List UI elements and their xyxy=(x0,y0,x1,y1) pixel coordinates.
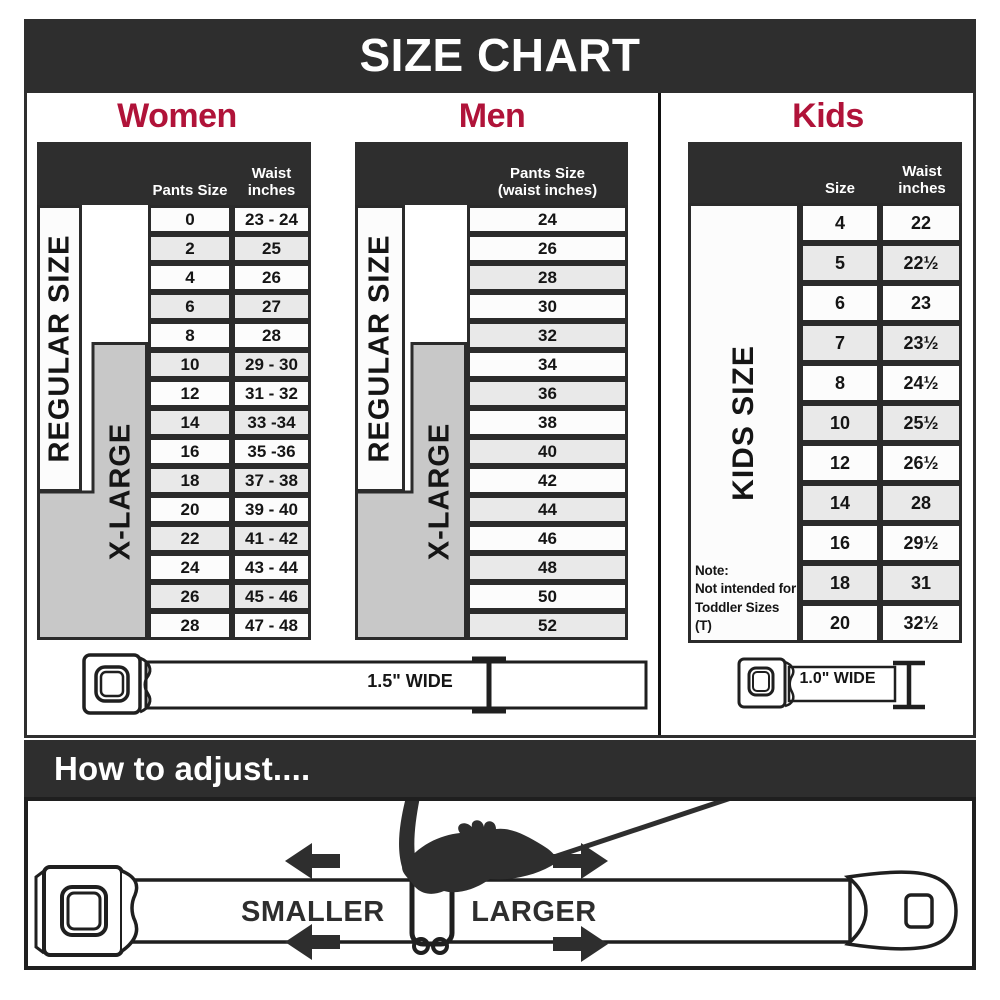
size-cell: 42 xyxy=(467,466,628,495)
table-row: 6 27 xyxy=(148,292,311,321)
waist-cell: 24½ xyxy=(880,363,962,403)
table-row: 7 23½ xyxy=(800,323,962,363)
kids-belt-width-label: 1.0" WIDE xyxy=(790,670,885,688)
waist-cell: 26½ xyxy=(880,443,962,483)
pull-strap-line xyxy=(548,801,734,859)
size-cell: 14 xyxy=(800,483,880,523)
smaller-label: SMALLER xyxy=(241,896,381,929)
table-row: 22 41 - 42 xyxy=(148,524,311,553)
kids-rows: 4 22 5 22½ 6 23 7 23½ xyxy=(800,203,962,643)
women-waist-column-header: Waist inches xyxy=(232,165,311,200)
waist-cell: 22½ xyxy=(880,243,962,283)
size-cell: 8 xyxy=(148,321,232,350)
kids-waist-column-header: Waist inches xyxy=(882,163,962,198)
size-cell: 5 xyxy=(800,243,880,283)
size-cell: 26 xyxy=(148,582,232,611)
size-cell: 0 xyxy=(148,205,232,234)
women-table-header: Pants Size Waist inches xyxy=(37,142,311,205)
size-cell: 48 xyxy=(467,553,628,582)
men-xlarge-label: X-LARGE xyxy=(423,422,456,560)
waist-cell: 28 xyxy=(880,483,962,523)
women-rows: 0 23 - 24 2 25 4 26 6 2 xyxy=(148,205,311,640)
waist-cell: 47 - 48 xyxy=(232,611,311,640)
table-row: 6 23 xyxy=(800,283,962,323)
women-regular-size-box: REGULAR SIZE xyxy=(37,205,82,492)
men-regular-size-label: REGULAR SIZE xyxy=(364,235,397,463)
waist-cell: 31 xyxy=(880,563,962,603)
waist-cell: 26 xyxy=(232,263,311,292)
table-row: 10 25½ xyxy=(800,403,962,443)
kids-note-line: Toddler Sizes (T) xyxy=(695,599,797,635)
kids-size-table: Size Waist inches KIDS SIZE Note: Not in… xyxy=(688,142,962,643)
size-cell: 46 xyxy=(467,524,628,553)
table-row: 12 31 - 32 xyxy=(148,379,311,408)
waist-cell: 45 - 46 xyxy=(232,582,311,611)
table-row: 52 xyxy=(467,611,628,640)
waist-cell: 43 - 44 xyxy=(232,553,311,582)
kids-note-line: Not intended for xyxy=(695,580,797,598)
kids-note-title: Note: xyxy=(695,562,797,580)
larger-label: LARGER xyxy=(464,896,604,929)
kids-size-label: KIDS SIZE xyxy=(727,345,761,501)
size-cell: 12 xyxy=(800,443,880,483)
arrow-left-icon xyxy=(285,843,340,879)
size-cell: 28 xyxy=(148,611,232,640)
width-measure-icon xyxy=(893,663,925,707)
table-row: 36 xyxy=(467,379,628,408)
waist-cell: 28 xyxy=(232,321,311,350)
how-to-adjust-heading: How to adjust.... xyxy=(24,750,310,788)
table-row: 44 xyxy=(467,495,628,524)
table-row: 42 xyxy=(467,466,628,495)
size-cell: 24 xyxy=(467,205,628,234)
table-row: 10 29 - 30 xyxy=(148,350,311,379)
kids-size-column-header: Size xyxy=(800,180,880,197)
men-column-header-line2: (waist inches) xyxy=(467,182,628,199)
size-cell: 4 xyxy=(148,263,232,292)
women-regular-size-label: REGULAR SIZE xyxy=(43,235,76,463)
table-row: 14 33 -34 xyxy=(148,408,311,437)
size-cell: 26 xyxy=(467,234,628,263)
kids-heading: Kids xyxy=(728,97,928,136)
table-row: 5 22½ xyxy=(800,243,962,283)
table-row: 16 35 -36 xyxy=(148,437,311,466)
size-cell: 24 xyxy=(148,553,232,582)
table-row: 18 37 - 38 xyxy=(148,466,311,495)
adjust-panel: SMALLER LARGER xyxy=(24,797,976,970)
waist-cell: 23 xyxy=(880,283,962,323)
size-cell: 6 xyxy=(800,283,880,323)
size-cell: 16 xyxy=(148,437,232,466)
table-row: 12 26½ xyxy=(800,443,962,483)
table-row: 4 22 xyxy=(800,203,962,243)
waist-cell: 23 - 24 xyxy=(232,205,311,234)
size-cell: 38 xyxy=(467,408,628,437)
men-heading: Men xyxy=(392,97,592,136)
table-row: 20 32½ xyxy=(800,603,962,643)
size-cell: 18 xyxy=(800,563,880,603)
table-row: 24 43 - 44 xyxy=(148,553,311,582)
page-title: SIZE CHART xyxy=(24,19,976,90)
size-cell: 20 xyxy=(148,495,232,524)
table-row: 14 28 xyxy=(800,483,962,523)
kids-size-box: KIDS SIZE Note: Not intended for Toddler… xyxy=(688,203,800,643)
table-row: 20 39 - 40 xyxy=(148,495,311,524)
waist-cell: 41 - 42 xyxy=(232,524,311,553)
table-row: 2 25 xyxy=(148,234,311,263)
table-row: 34 xyxy=(467,350,628,379)
waist-cell: 23½ xyxy=(880,323,962,363)
size-cell: 32 xyxy=(467,321,628,350)
size-cell: 8 xyxy=(800,363,880,403)
size-cell: 4 xyxy=(800,203,880,243)
size-cell: 30 xyxy=(467,292,628,321)
table-row: 32 xyxy=(467,321,628,350)
table-row: 4 26 xyxy=(148,263,311,292)
table-row: 38 xyxy=(467,408,628,437)
size-cell: 20 xyxy=(800,603,880,643)
how-to-adjust-bar: How to adjust.... xyxy=(24,740,976,797)
size-cell: 34 xyxy=(467,350,628,379)
table-row: 46 xyxy=(467,524,628,553)
table-row: 28 xyxy=(467,263,628,292)
table-row: 24 xyxy=(467,205,628,234)
size-cell: 12 xyxy=(148,379,232,408)
women-xlarge-box: X-LARGE xyxy=(93,342,148,640)
waist-cell: 25½ xyxy=(880,403,962,443)
size-cell: 50 xyxy=(467,582,628,611)
men-size-table: Pants Size (waist inches) REGULAR SIZE X… xyxy=(355,142,628,640)
table-row: 48 xyxy=(467,553,628,582)
women-xlarge-label: X-LARGE xyxy=(104,422,137,560)
size-cell: 14 xyxy=(148,408,232,437)
women-size-table: Pants Size Waist inches REGULAR SIZE X-L… xyxy=(37,142,311,640)
size-cell: 16 xyxy=(800,523,880,563)
size-cell: 28 xyxy=(467,263,628,292)
table-row: 28 47 - 48 xyxy=(148,611,311,640)
table-row: 50 xyxy=(467,582,628,611)
table-row: 26 xyxy=(467,234,628,263)
size-cell: 10 xyxy=(148,350,232,379)
waist-cell: 32½ xyxy=(880,603,962,643)
size-cell: 52 xyxy=(467,611,628,640)
size-cell: 2 xyxy=(148,234,232,263)
table-row: 0 23 - 24 xyxy=(148,205,311,234)
belt-end-tab xyxy=(848,872,956,949)
adult-belt-width-label: 1.5" WIDE xyxy=(350,671,470,692)
table-row: 18 31 xyxy=(800,563,962,603)
waist-cell: 25 xyxy=(232,234,311,263)
table-row: 8 28 xyxy=(148,321,311,350)
main-panel: Women Men Kids Pants Size Waist inches R… xyxy=(24,90,976,738)
waist-cell: 29½ xyxy=(880,523,962,563)
table-row: 30 xyxy=(467,292,628,321)
table-row: 16 29½ xyxy=(800,523,962,563)
size-cell: 44 xyxy=(467,495,628,524)
size-cell: 22 xyxy=(148,524,232,553)
table-row: 8 24½ xyxy=(800,363,962,403)
size-cell: 18 xyxy=(148,466,232,495)
size-chart-page: SIZE CHART Women Men Kids Pants Size Wai… xyxy=(0,0,1000,1000)
men-column-header-line1: Pants Size xyxy=(467,165,628,182)
waist-cell: 33 -34 xyxy=(232,408,311,437)
men-column-header: Pants Size (waist inches) xyxy=(467,165,628,200)
men-xlarge-box: X-LARGE xyxy=(412,342,467,640)
adjust-belt-illustration xyxy=(28,801,972,966)
men-table-header: Pants Size (waist inches) xyxy=(355,142,628,205)
section-divider xyxy=(658,93,661,735)
men-regular-size-box: REGULAR SIZE xyxy=(355,205,405,492)
waist-cell: 27 xyxy=(232,292,311,321)
waist-cell: 22 xyxy=(880,203,962,243)
women-heading: Women xyxy=(77,97,277,136)
men-rows: 24 26 28 30 32 xyxy=(467,205,628,640)
kids-table-header: Size Waist inches xyxy=(688,142,962,203)
waist-cell: 35 -36 xyxy=(232,437,311,466)
table-row: 26 45 - 46 xyxy=(148,582,311,611)
women-size-column-header: Pants Size xyxy=(148,182,232,199)
waist-cell: 39 - 40 xyxy=(232,495,311,524)
size-cell: 36 xyxy=(467,379,628,408)
waist-cell: 31 - 32 xyxy=(232,379,311,408)
waist-cell: 37 - 38 xyxy=(232,466,311,495)
kids-note: Note: Not intended for Toddler Sizes (T) xyxy=(695,562,797,635)
size-cell: 7 xyxy=(800,323,880,363)
size-cell: 40 xyxy=(467,437,628,466)
size-cell: 10 xyxy=(800,403,880,443)
size-cell: 6 xyxy=(148,292,232,321)
waist-cell: 29 - 30 xyxy=(232,350,311,379)
table-row: 40 xyxy=(467,437,628,466)
